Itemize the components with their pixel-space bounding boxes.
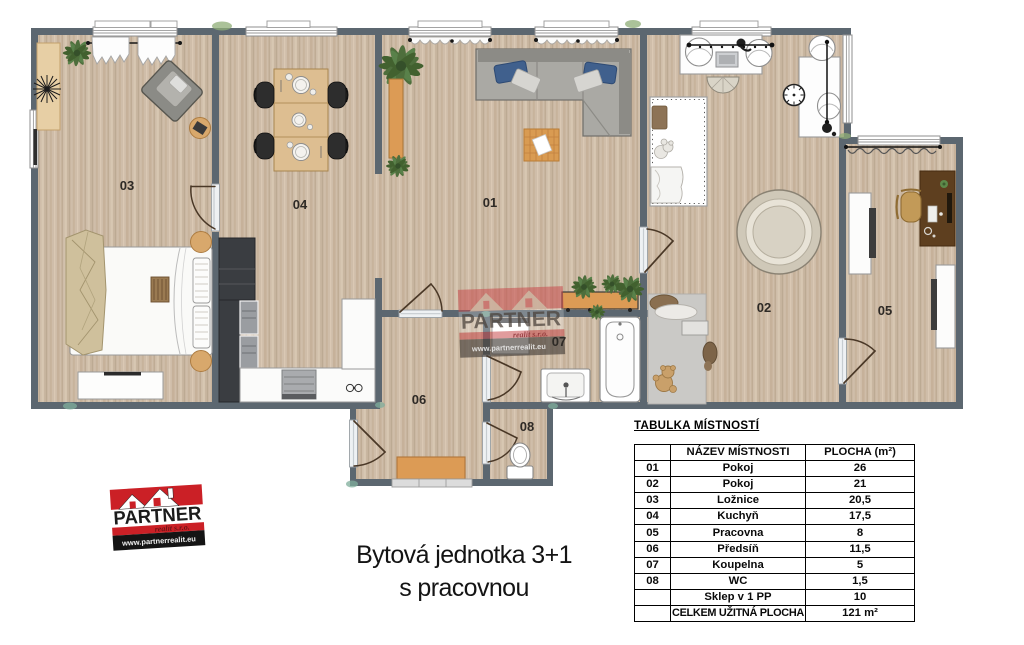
svg-text:07: 07: [552, 334, 566, 349]
svg-text:06: 06: [412, 392, 426, 407]
svg-text:01: 01: [483, 195, 497, 210]
svg-text:05: 05: [878, 303, 892, 318]
svg-text:04: 04: [293, 197, 308, 212]
svg-text:02: 02: [757, 300, 771, 315]
svg-text:03: 03: [120, 178, 134, 193]
svg-text:08: 08: [520, 419, 534, 434]
